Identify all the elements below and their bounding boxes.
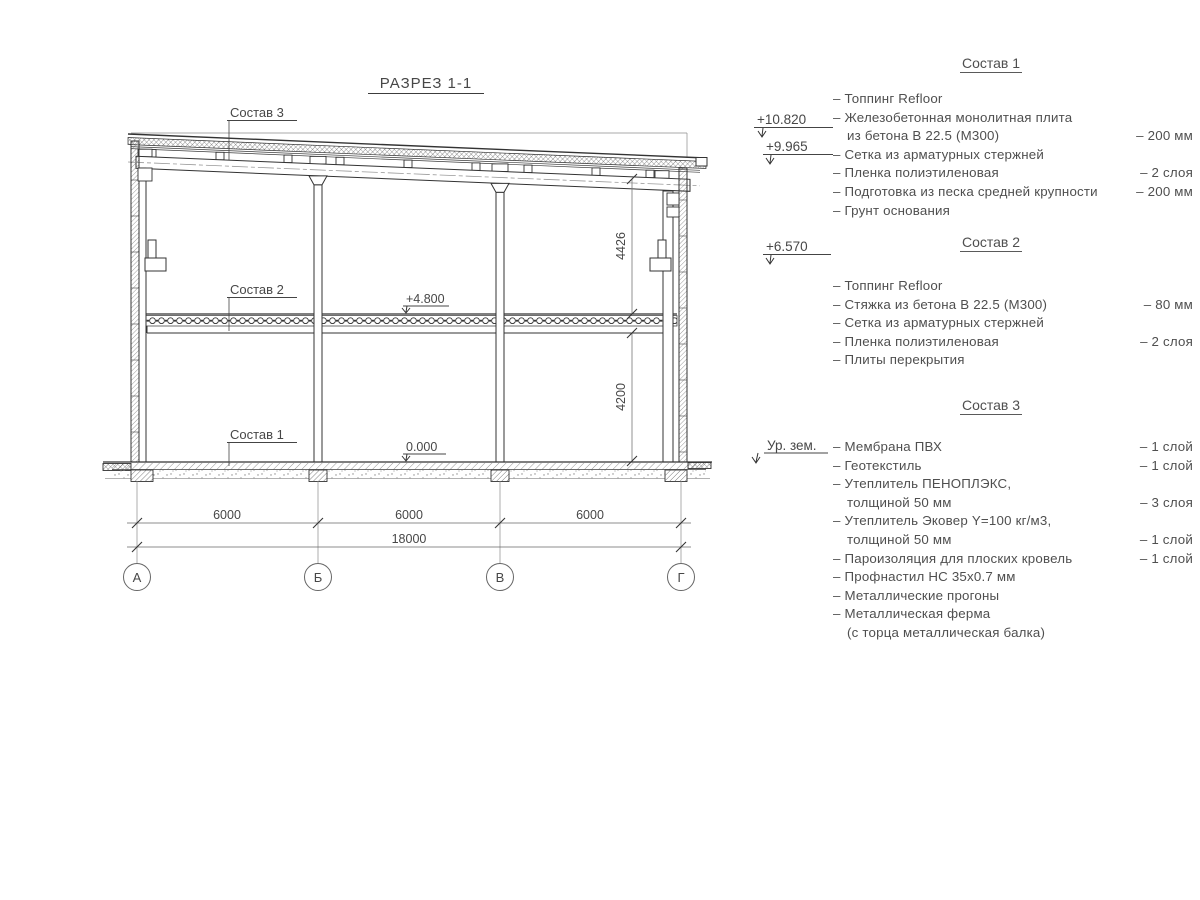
elevation-9965-text: +9.965 — [766, 139, 808, 154]
list-item: – Сетка из арматурных стержней — [833, 314, 1193, 333]
right-wall — [650, 168, 687, 462]
roof-edge-cap — [696, 158, 707, 167]
roof-assembly — [128, 134, 707, 191]
list-item: – Пленка полиэтиленовая– 2 слоя — [833, 164, 1193, 183]
composition-3-heading: Состав 3 — [833, 397, 1149, 413]
list-item: – Плиты перекрытия — [833, 351, 1193, 370]
dim-bay3-text: 6000 — [576, 508, 604, 522]
list-item: – Мембрана ПВХ– 1 слой — [833, 438, 1193, 457]
left-apron — [103, 464, 131, 471]
list-item: – Стяжка из бетона В 22.5 (М300)– 80 мм — [833, 296, 1193, 315]
ground-foundation — [103, 462, 712, 482]
dim-bay2-text: 6000 — [395, 508, 423, 522]
dim-total-text: 18000 — [392, 532, 427, 546]
callout-sostav1: Состав 1 — [227, 427, 297, 466]
list-item: – Железобетонная монолитная плита — [833, 109, 1193, 128]
list-item: – Пленка полиэтиленовая– 2 слоя — [833, 333, 1193, 352]
drawing-title: РАЗРЕЗ 1-1 — [368, 75, 484, 94]
elevation-10820: +10.820 — [754, 112, 833, 137]
list-item: – Грунт основания — [833, 202, 1193, 221]
dim-bay1-text: 6000 — [213, 508, 241, 522]
list-item: толщиной 50 мм– 3 слоя — [833, 494, 1193, 513]
ground-level-text: Ур. зем. — [767, 438, 817, 453]
list-item: – Топпинг Refloor — [833, 277, 1193, 296]
left-bracket-arm — [145, 258, 166, 271]
hollow-core-slab-hatch — [139, 316, 677, 327]
composition-1-heading-text: Состав 1 — [960, 55, 1022, 73]
elevation-0000-text: 0.000 — [406, 440, 437, 454]
left-wall-column — [139, 168, 146, 462]
composition-1-heading: Состав 1 — [833, 55, 1149, 71]
list-item: – Утеплитель Эковер Y=100 кг/м3, — [833, 512, 1193, 531]
left-wall — [131, 141, 166, 462]
right-bracket-arm — [650, 258, 671, 271]
list-item: – Металлическая ферма — [833, 605, 1193, 624]
list-item: – Геотекстиль– 1 слой — [833, 457, 1193, 476]
ground-slab-hatch — [112, 463, 706, 470]
callout-sostav2-text: Состав 2 — [230, 282, 284, 297]
axis-v-label: В — [496, 570, 505, 585]
left-bracket-stub — [148, 240, 156, 258]
dim-4426: 4426 — [614, 174, 637, 319]
composition-3-block: Состав 3 – Мембрана ПВХ– 1 слой – Геотек… — [833, 397, 1193, 643]
elevation-4800-text: +4.800 — [406, 292, 445, 306]
composition-2-heading: Состав 2 — [833, 234, 1149, 250]
composition-3-heading-text: Состав 3 — [960, 397, 1022, 415]
callout-sostav3-text: Состав 3 — [230, 105, 284, 120]
dim-4200: 4200 — [614, 328, 637, 466]
elevation-0000: 0.000 — [402, 440, 446, 461]
bottom-dimensions: 6000 6000 6000 18000 — [127, 481, 691, 563]
list-item: толщиной 50 мм– 1 слой — [833, 531, 1193, 550]
list-item: – Пароизоляция для плоских кровель– 1 сл… — [833, 550, 1193, 569]
elevation-6570: +6.570 — [763, 239, 831, 264]
elevation-6570-text: +6.570 — [766, 239, 808, 254]
composition-1-block: Состав 1 – Топпинг Refloor – Железобетон… — [833, 55, 1193, 220]
axis-b-label: Б — [314, 570, 323, 585]
axis-g-label: Г — [677, 570, 684, 585]
list-item: (с торца металлическая балка) — [833, 624, 1193, 643]
middle-floor-slab — [139, 314, 677, 333]
section-title-text: РАЗРЕЗ 1-1 — [380, 75, 473, 92]
list-item: – Подготовка из песка средней крупности–… — [833, 183, 1193, 202]
axis-bubbles: А Б В Г — [124, 564, 695, 591]
elevation-4800: +4.800 — [402, 292, 449, 313]
list-item: – Топпинг Refloor — [833, 90, 1193, 109]
right-bracket-stub — [658, 240, 666, 258]
elevation-10820-text: +10.820 — [757, 112, 806, 127]
right-apron — [688, 463, 711, 469]
callout-sostav1-text: Состав 1 — [230, 427, 284, 442]
dim-4426-text: 4426 — [614, 232, 628, 260]
composition-2-heading-text: Состав 2 — [960, 234, 1022, 252]
list-item: из бетона В 22.5 (М300)– 200 мм — [833, 127, 1193, 146]
composition-2-block: Состав 2 – Топпинг Refloor – Стяжка из б… — [833, 234, 1193, 370]
elevation-9965: +9.965 — [763, 139, 833, 164]
list-item: – Металлические прогоны — [833, 587, 1193, 606]
elevation-ground-level: Ур. зем. — [752, 438, 828, 463]
list-item: – Профнастил НС 35х0.7 мм — [833, 568, 1193, 587]
sand-bed-stipple — [112, 470, 706, 479]
axis-a-label: А — [133, 570, 142, 585]
dim-4200-text: 4200 — [614, 383, 628, 411]
right-wall-column — [663, 191, 673, 462]
list-item: – Утеплитель ПЕНОПЛЭКС, — [833, 475, 1193, 494]
list-item: – Сетка из арматурных стержней — [833, 146, 1193, 165]
